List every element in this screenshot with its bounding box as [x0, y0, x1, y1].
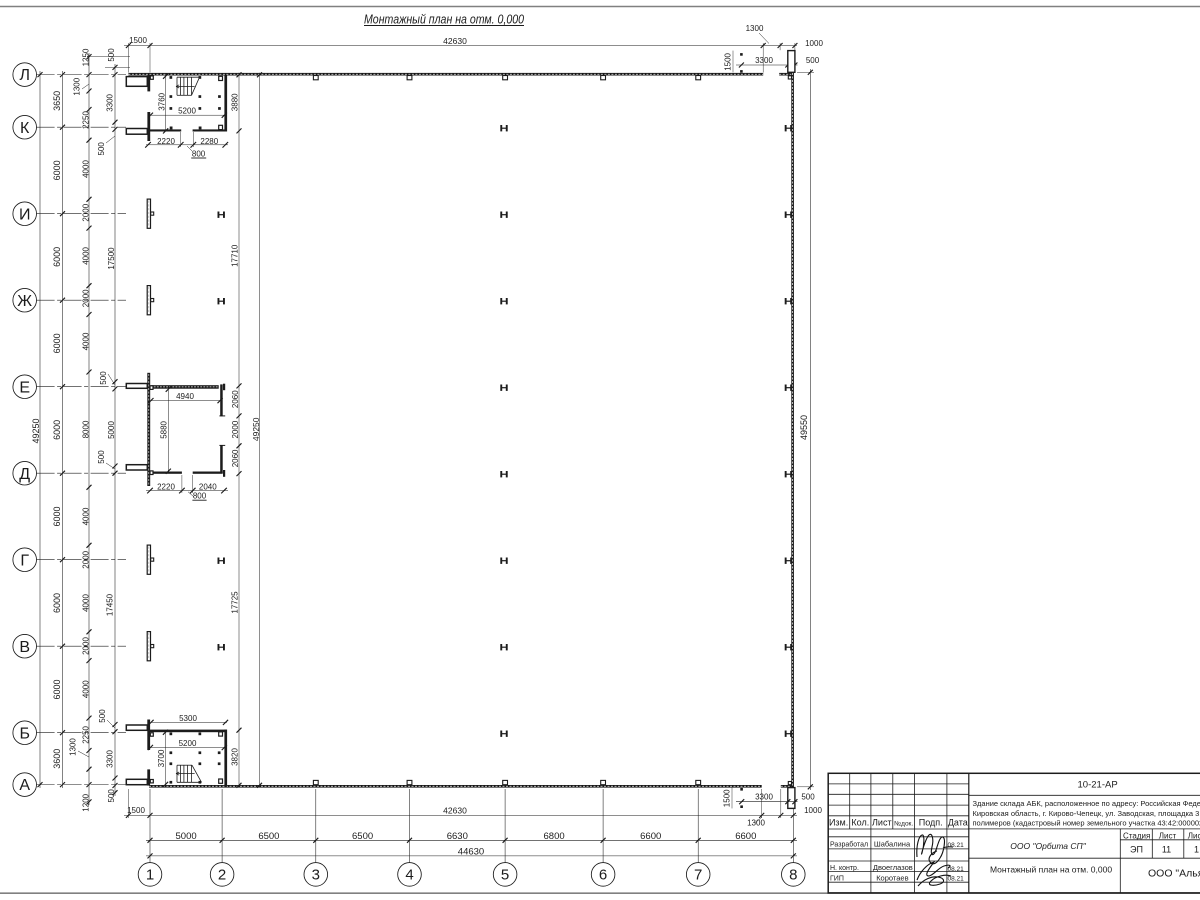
svg-text:500: 500 — [98, 709, 107, 723]
svg-text:2: 2 — [218, 867, 226, 884]
svg-text:2000: 2000 — [81, 637, 90, 655]
svg-text:Кировская область, г. Кирово-Ч: Кировская область, г. Кирово-Чепецк, ул.… — [973, 809, 1200, 818]
svg-text:6000: 6000 — [52, 160, 62, 180]
svg-text:6000: 6000 — [52, 420, 62, 440]
svg-text:1300: 1300 — [746, 24, 764, 33]
svg-text:08.21: 08.21 — [947, 842, 964, 849]
svg-text:3820: 3820 — [230, 748, 239, 766]
svg-text:2060: 2060 — [231, 449, 240, 467]
svg-text:11: 11 — [1162, 845, 1171, 855]
svg-text:1000: 1000 — [805, 39, 823, 48]
svg-text:800: 800 — [192, 149, 206, 158]
svg-text:3300: 3300 — [755, 56, 773, 65]
svg-text:2060: 2060 — [231, 390, 240, 408]
svg-text:И: И — [19, 206, 31, 223]
svg-text:4000: 4000 — [81, 332, 90, 350]
svg-text:Дата: Дата — [948, 818, 968, 828]
svg-text:1: 1 — [1194, 845, 1199, 855]
svg-text:3300: 3300 — [755, 793, 773, 802]
svg-text:800: 800 — [193, 492, 207, 501]
svg-text:4: 4 — [405, 867, 413, 884]
svg-text:5880: 5880 — [160, 420, 169, 438]
svg-text:К: К — [20, 120, 30, 137]
svg-text:8000: 8000 — [81, 420, 90, 438]
svg-text:1200: 1200 — [81, 793, 90, 811]
svg-text:5000: 5000 — [107, 421, 116, 439]
svg-text:6000: 6000 — [52, 593, 62, 613]
svg-text:Шабалина: Шабалина — [874, 839, 911, 848]
svg-text:4000: 4000 — [81, 160, 90, 178]
svg-text:3650: 3650 — [52, 91, 62, 111]
svg-text:Лист: Лист — [1159, 832, 1177, 841]
svg-text:2250: 2250 — [81, 725, 90, 743]
svg-text:1500: 1500 — [723, 789, 732, 807]
svg-text:500: 500 — [99, 371, 108, 385]
svg-text:Н. контр.: Н. контр. — [830, 865, 859, 872]
svg-text:6000: 6000 — [52, 506, 62, 526]
svg-text:Г: Г — [20, 552, 29, 569]
svg-text:2040: 2040 — [199, 483, 217, 492]
svg-text:ГИП: ГИП — [830, 876, 844, 883]
svg-text:3760: 3760 — [157, 92, 166, 110]
svg-text:ООО "Альянс-2": ООО "Альянс-2" — [1148, 868, 1200, 880]
svg-text:1500: 1500 — [127, 806, 145, 815]
svg-text:4000: 4000 — [81, 594, 90, 612]
svg-text:6000: 6000 — [52, 247, 62, 267]
svg-text:2280: 2280 — [200, 137, 218, 146]
svg-text:Е: Е — [19, 379, 30, 396]
svg-text:Монтажный план на отм. 0,000: Монтажный план на отм. 0,000 — [990, 865, 1112, 875]
svg-text:1500: 1500 — [129, 36, 147, 45]
svg-text:2220: 2220 — [157, 137, 175, 146]
svg-text:6600: 6600 — [640, 831, 661, 842]
svg-text:В: В — [19, 639, 30, 656]
svg-text:1000: 1000 — [804, 806, 822, 815]
svg-text:49550: 49550 — [799, 415, 809, 440]
svg-text:17710: 17710 — [230, 244, 239, 267]
svg-text:6500: 6500 — [258, 831, 279, 842]
svg-text:Здание склада АБК, расположенн: Здание склада АБК, расположенное по адре… — [973, 799, 1200, 808]
svg-text:№док.: №док. — [894, 820, 913, 827]
svg-text:17725: 17725 — [230, 591, 239, 614]
svg-text:1250: 1250 — [81, 48, 90, 66]
svg-text:5300: 5300 — [179, 714, 197, 723]
svg-text:3300: 3300 — [106, 93, 115, 111]
svg-text:4000: 4000 — [81, 246, 90, 264]
svg-text:500: 500 — [801, 793, 815, 802]
svg-text:6: 6 — [599, 867, 607, 884]
svg-text:1300: 1300 — [69, 738, 78, 756]
svg-text:Коротаев: Коротаев — [876, 874, 908, 883]
svg-text:Лист: Лист — [1188, 832, 1200, 841]
svg-text:6630: 6630 — [447, 831, 468, 842]
svg-text:1300: 1300 — [747, 819, 765, 828]
svg-text:Кол.: Кол. — [851, 818, 869, 828]
svg-text:3700: 3700 — [157, 749, 166, 767]
svg-text:49250: 49250 — [31, 418, 41, 443]
svg-text:Лист: Лист — [872, 818, 892, 828]
svg-text:Б: Б — [19, 725, 30, 742]
svg-text:6000: 6000 — [52, 679, 62, 699]
svg-text:2250: 2250 — [81, 111, 90, 129]
svg-text:3300: 3300 — [106, 750, 115, 768]
svg-text:44630: 44630 — [458, 846, 484, 857]
svg-text:ЭП: ЭП — [1130, 845, 1143, 855]
svg-text:8: 8 — [789, 867, 797, 884]
svg-text:1500: 1500 — [724, 52, 733, 70]
svg-text:5200: 5200 — [178, 107, 196, 116]
svg-text:3: 3 — [312, 867, 320, 884]
svg-text:500: 500 — [107, 48, 116, 62]
svg-text:Л: Л — [19, 67, 30, 84]
svg-text:Монтажный план на отм. 0,000: Монтажный план на отм. 0,000 — [364, 13, 524, 27]
svg-text:Разработал: Разработал — [830, 840, 868, 848]
svg-text:17500: 17500 — [107, 247, 116, 270]
svg-text:ООО "Орбита СП": ООО "Орбита СП" — [1010, 841, 1086, 851]
svg-text:17450: 17450 — [106, 593, 115, 616]
svg-text:6800: 6800 — [544, 831, 565, 842]
svg-text:2000: 2000 — [81, 550, 90, 568]
svg-text:5000: 5000 — [176, 831, 197, 842]
svg-text:49250: 49250 — [251, 417, 261, 441]
svg-text:6500: 6500 — [352, 831, 373, 842]
svg-text:500: 500 — [107, 789, 116, 803]
svg-text:Подп.: Подп. — [919, 818, 943, 828]
svg-text:4000: 4000 — [81, 680, 90, 698]
svg-text:2000: 2000 — [81, 203, 90, 221]
svg-text:полимеров (кадастровый номер з: полимеров (кадастровый номер земельного … — [973, 819, 1200, 828]
svg-text:42630: 42630 — [443, 36, 467, 46]
svg-text:5: 5 — [501, 867, 509, 884]
svg-text:3600: 3600 — [52, 749, 62, 769]
svg-text:42630: 42630 — [443, 806, 467, 816]
svg-text:4940: 4940 — [176, 392, 194, 401]
svg-text:5200: 5200 — [179, 739, 197, 748]
svg-text:3880: 3880 — [230, 93, 239, 111]
svg-text:2000: 2000 — [231, 420, 240, 438]
svg-text:500: 500 — [806, 56, 820, 65]
svg-text:Изм.: Изм. — [829, 818, 848, 828]
svg-text:Двоеглазов: Двоеглазов — [873, 863, 913, 872]
svg-text:Ж: Ж — [17, 293, 32, 310]
svg-text:Д: Д — [19, 466, 30, 483]
svg-text:6600: 6600 — [735, 831, 756, 842]
svg-text:4000: 4000 — [81, 507, 90, 525]
svg-text:А: А — [19, 777, 30, 794]
svg-text:10-21-АР: 10-21-АР — [1078, 780, 1118, 791]
svg-text:7: 7 — [694, 867, 702, 884]
svg-text:08.21: 08.21 — [947, 875, 964, 882]
svg-text:6000: 6000 — [52, 333, 62, 353]
svg-text:1300: 1300 — [72, 77, 81, 95]
svg-text:2000: 2000 — [81, 289, 90, 307]
svg-text:500: 500 — [97, 142, 106, 156]
svg-text:Стадия: Стадия — [1123, 832, 1150, 841]
svg-text:1: 1 — [146, 867, 154, 884]
svg-text:500: 500 — [97, 450, 106, 464]
svg-text:2220: 2220 — [157, 483, 175, 492]
